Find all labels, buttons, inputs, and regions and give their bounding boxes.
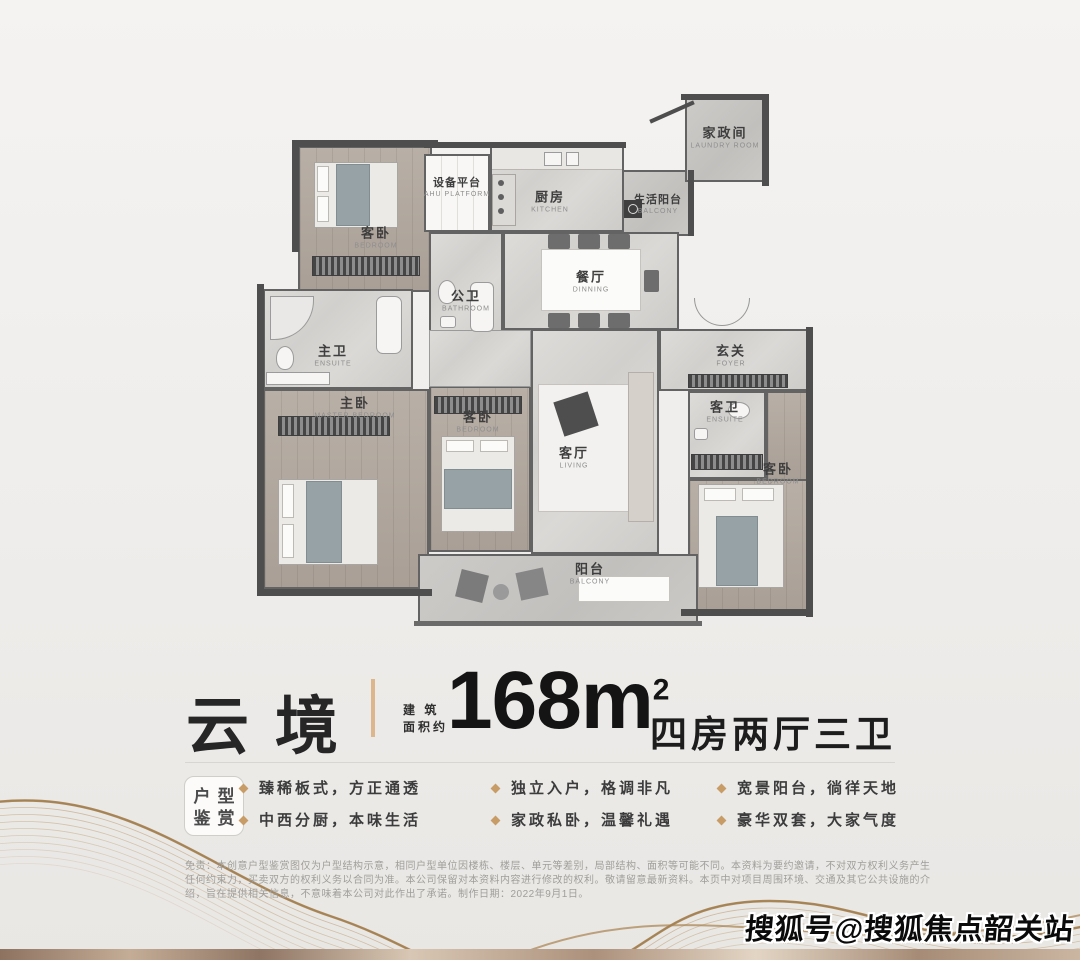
diamond-bullet-icon (239, 784, 249, 794)
bed-blanket (336, 164, 370, 226)
vanity (266, 372, 330, 385)
bed-pillow (282, 484, 294, 518)
dining-chair (608, 234, 630, 249)
bed-pillow (446, 440, 474, 452)
bed-blanket (716, 516, 758, 586)
room-label: 公卫BATHROOM (442, 286, 490, 313)
bed-pillow (704, 488, 736, 501)
room-label: 厨房KITCHEN (531, 187, 569, 214)
stove-burner (498, 180, 504, 186)
feature-item: 家政私卧，温馨礼遇 (492, 811, 673, 831)
wall-segment (257, 284, 264, 596)
area-value: 168m2 (447, 660, 669, 742)
stove-burner (498, 194, 504, 200)
wall-segment (414, 621, 702, 626)
room-label: 客卧BEDROOM (354, 223, 397, 250)
room-label: 家政间LAUNDRY ROOM (691, 123, 760, 150)
dining-chair (578, 313, 600, 328)
shoe-cabinet (688, 374, 788, 388)
divider-line (185, 762, 895, 763)
wardrobe (691, 454, 763, 470)
dining-chair (644, 270, 659, 292)
room-label: 玄关FOYER (716, 341, 746, 368)
stove (492, 174, 516, 226)
entry-door-arc (694, 298, 722, 326)
stove-burner (498, 208, 504, 214)
sofa (628, 372, 654, 522)
dining-chair (578, 234, 600, 249)
layout-spec: 四房两厅三卫 (650, 704, 896, 758)
badge-huxing-jianshang: 户型 鉴赏 (184, 776, 244, 836)
bed-pillow (317, 166, 329, 192)
room-label: 客厅LIVING (559, 443, 589, 470)
bed-pillow (282, 524, 294, 558)
wall-segment (292, 140, 299, 252)
diamond-bullet-icon (491, 816, 501, 826)
wall-segment (688, 170, 694, 236)
wall-segment (762, 94, 769, 186)
diamond-bullet-icon (239, 816, 249, 826)
gold-divider (371, 679, 375, 737)
room-label: 主卫ENSUITE (314, 341, 351, 368)
dining-chair (608, 313, 630, 328)
room-label: 客卧BEDROOM (756, 459, 799, 486)
kitchen-sink (544, 152, 562, 166)
watermark-text: 搜狐号@搜狐焦点韶关站 (743, 906, 1076, 948)
sink (440, 316, 456, 328)
bed-pillow (480, 440, 508, 452)
feature-item: 臻稀板式，方正通透 (240, 779, 421, 799)
disclaimer-text: 免责：本创意户型鉴赏图仅为户型结构示意，相同户型单位因楼栋、楼层、单元等差别，局… (185, 860, 933, 902)
room-label: 设备平台AHU PLATFORM (424, 174, 490, 198)
diamond-bullet-icon (491, 784, 501, 794)
room-label: 客卧BEDROOM (456, 407, 499, 434)
wall-segment (681, 609, 813, 616)
room-label: 生活阳台BALCONY (634, 191, 682, 215)
sink (694, 428, 708, 440)
area-label: 建 筑 面积约 (403, 702, 448, 737)
feature-item: 宽景阳台，徜徉天地 (718, 779, 899, 799)
wall-segment (806, 327, 813, 617)
room-label: 餐厅DINNING (573, 267, 610, 294)
bottom-gradient-bar (0, 949, 1080, 960)
room-label: 客卫ENSUITE (706, 397, 743, 424)
diamond-bullet-icon (717, 816, 727, 826)
diamond-bullet-icon (717, 784, 727, 794)
bed-pillow (742, 488, 774, 501)
wall-segment (257, 589, 432, 596)
wardrobe (312, 256, 420, 276)
wall-segment (292, 140, 438, 147)
feature-item: 中西分厨，本味生活 (240, 811, 421, 831)
room-hallway (429, 330, 531, 387)
dining-chair (548, 313, 570, 328)
balcony-table (493, 584, 509, 600)
bed-pillow (317, 196, 329, 222)
kitchen-sink (566, 152, 579, 166)
room-label: 阳台BALCONY (570, 559, 610, 586)
balcony-chair (515, 567, 548, 600)
bed-blanket (444, 469, 512, 509)
unit-name: 云境 (186, 676, 364, 767)
bathtub (376, 296, 402, 354)
bed-blanket (306, 481, 342, 563)
toilet (276, 346, 294, 370)
entry-door-arc (722, 298, 750, 326)
area-superscript: 2 (653, 674, 670, 707)
feature-item: 独立入户，格调非凡 (492, 779, 673, 799)
wall-segment (681, 94, 769, 100)
dining-chair (548, 234, 570, 249)
feature-item: 豪华双套，大家气度 (718, 811, 899, 831)
floor-plan: 客卧BEDROOM 设备平台AHU PLATFORM 厨房KITCHEN 生活阳… (226, 84, 882, 646)
room-label: 主卧MASTER BEDROOM (314, 393, 395, 420)
